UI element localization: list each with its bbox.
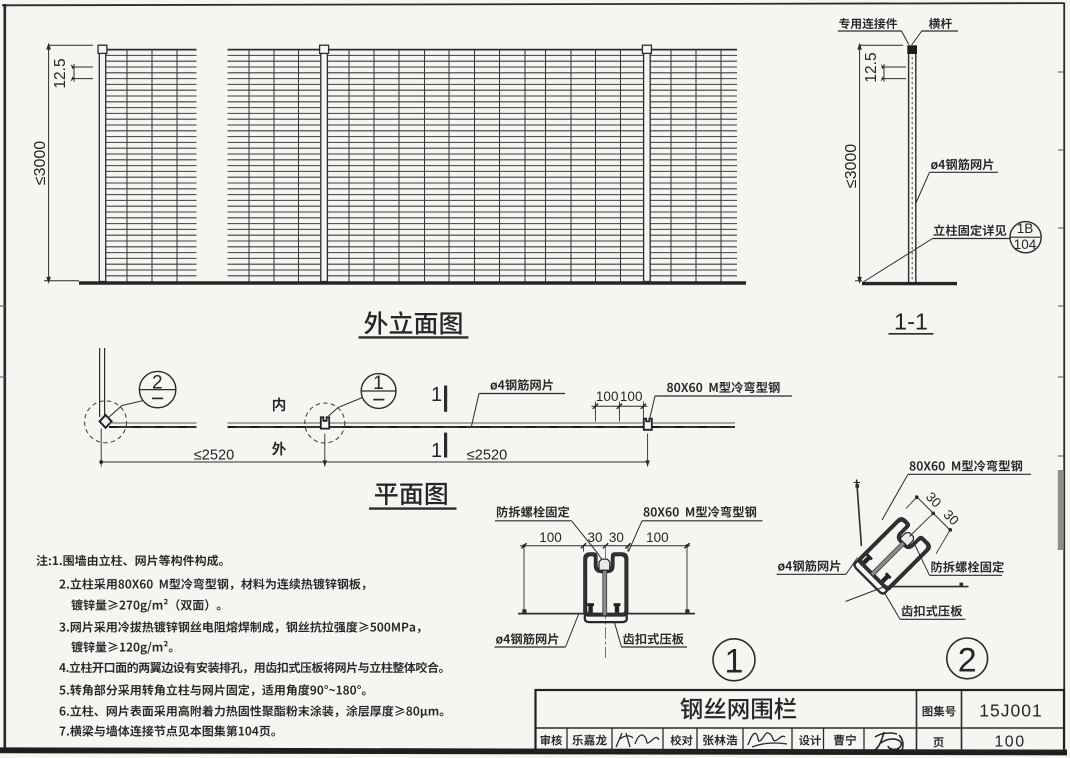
svg-text:≤3000: ≤3000 <box>32 141 49 185</box>
svg-text:100: 100 <box>620 389 643 404</box>
svg-text:2: 2 <box>958 642 977 680</box>
svg-text:12.5: 12.5 <box>52 58 69 88</box>
svg-text:1B: 1B <box>1017 221 1034 236</box>
svg-text:100: 100 <box>994 734 1025 751</box>
svg-text:1: 1 <box>431 440 442 462</box>
svg-text:30: 30 <box>587 530 602 545</box>
svg-text:1-1: 1-1 <box>894 309 928 335</box>
svg-text:1: 1 <box>725 643 744 681</box>
svg-text:15J001: 15J001 <box>979 701 1042 721</box>
svg-text:≤2520: ≤2520 <box>194 447 234 463</box>
svg-text:100: 100 <box>646 530 669 545</box>
svg-text:12.5: 12.5 <box>863 52 880 82</box>
svg-text:100: 100 <box>596 389 619 404</box>
svg-text:104: 104 <box>1014 237 1037 252</box>
svg-text:≤2520: ≤2520 <box>467 447 507 463</box>
svg-text:≤3000: ≤3000 <box>843 144 860 188</box>
svg-text:1: 1 <box>431 384 442 406</box>
svg-text:30: 30 <box>609 530 624 545</box>
svg-text:100: 100 <box>539 530 562 545</box>
svg-text:1: 1 <box>373 373 384 394</box>
svg-text:2: 2 <box>152 372 163 393</box>
